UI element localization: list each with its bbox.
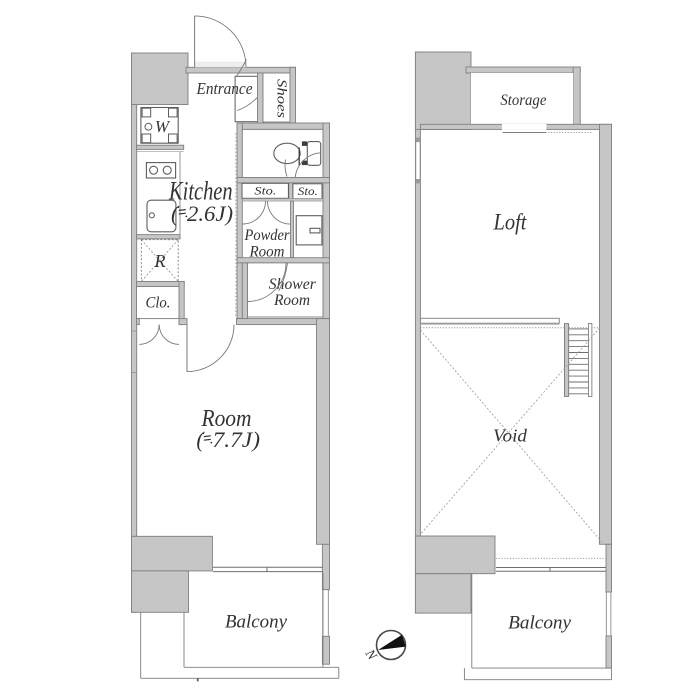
svg-text:Clo.: Clo. xyxy=(146,295,171,312)
svg-text:R: R xyxy=(154,251,166,271)
svg-text:Loft: Loft xyxy=(493,210,527,235)
svg-text:Balcony: Balcony xyxy=(225,612,288,633)
svg-text:7.7J): 7.7J) xyxy=(213,427,261,452)
svg-text:2.6J): 2.6J) xyxy=(187,201,233,226)
svg-text:Room: Room xyxy=(273,292,310,309)
svg-text:Shower: Shower xyxy=(269,276,317,293)
svg-text:Sto.: Sto. xyxy=(298,186,318,198)
svg-text:Sto.: Sto. xyxy=(254,186,276,198)
svg-text:Entrance: Entrance xyxy=(196,79,253,98)
svg-text:Shoes: Shoes xyxy=(275,79,290,118)
svg-text:Powder: Powder xyxy=(244,227,291,244)
svg-text:Void: Void xyxy=(493,426,528,446)
svg-text:Storage: Storage xyxy=(500,92,546,109)
svg-text:Balcony: Balcony xyxy=(508,613,572,634)
svg-text:W: W xyxy=(155,117,171,136)
